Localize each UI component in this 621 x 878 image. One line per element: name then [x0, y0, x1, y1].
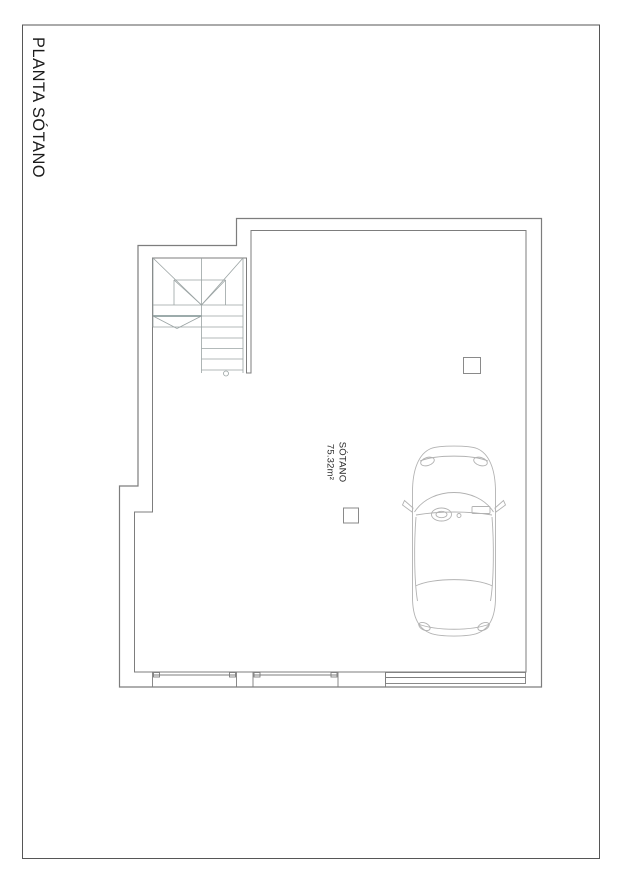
drawing-sheet: PLANTA SÓTANO SÓTANO 75.32m² [0, 0, 621, 878]
bottom-wall-openings [153, 672, 526, 687]
car-mirror-right [495, 501, 506, 513]
car-windshield [415, 493, 494, 513]
car-door-line-right [491, 517, 494, 601]
sheet-title: PLANTA SÓTANO [28, 37, 48, 178]
car-door-line-left [415, 517, 418, 601]
car-taillight-left [418, 621, 432, 632]
stair-drain-circle [224, 371, 229, 376]
car-top-view [403, 446, 506, 636]
room-label: SÓTANO 75.32m² [322, 436, 348, 489]
car-steering-wheel [432, 508, 452, 521]
floor-plan-canvas [0, 0, 621, 878]
car-body [413, 446, 496, 636]
car-mirror-left [403, 501, 414, 513]
room-name: SÓTANO [335, 436, 347, 489]
garage-door [386, 672, 526, 687]
car-gear-knob [457, 514, 461, 518]
window-bottom-center [253, 672, 338, 687]
staircase [153, 258, 243, 376]
car-rear-window [416, 580, 493, 586]
column-square-lower [344, 508, 359, 523]
sheet-border-frame [23, 25, 600, 859]
window-bottom-left [153, 672, 237, 687]
car-taillight-right [477, 621, 491, 632]
room-area: 75.32m² [323, 436, 335, 489]
column-square-upper [464, 358, 481, 374]
